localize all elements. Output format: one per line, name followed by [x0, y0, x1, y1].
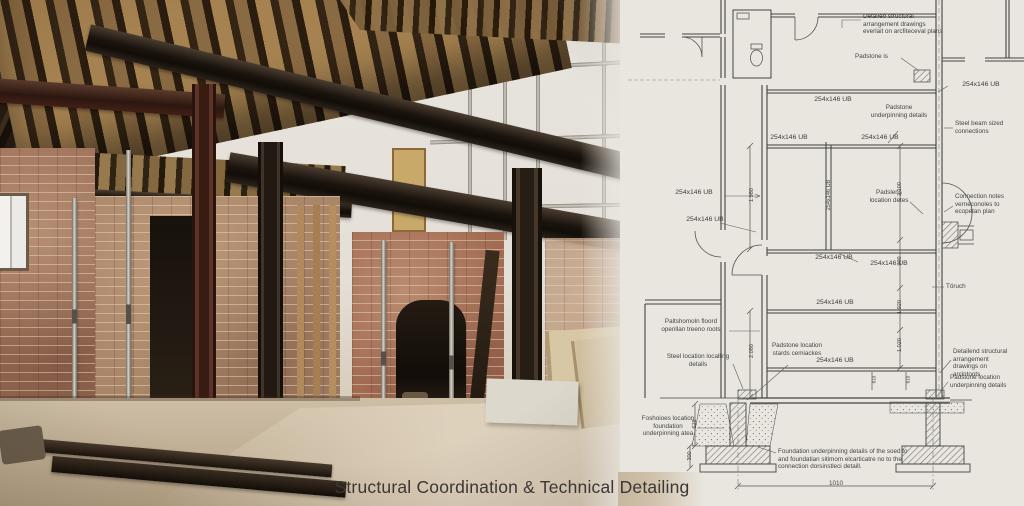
note-detailed-top: Detailed structural arrangement drawings…: [863, 13, 945, 36]
note-steel-beam-sized: Steel beam sized connections: [955, 120, 1017, 135]
beam-size-label: 254x146 UB: [796, 96, 870, 103]
dim-1920: 1.920: [897, 289, 903, 325]
leader-lines: [697, 20, 953, 453]
steel-beam-lines: [767, 87, 936, 371]
white-board: [485, 378, 578, 425]
dim-300: 300: [687, 438, 693, 474]
doorway-opening: [150, 216, 196, 412]
dim-610: 610: [872, 362, 877, 398]
window: [0, 196, 26, 268]
beam-size-label-vertical: 254x146 UB: [826, 165, 832, 225]
dim-2080: 2.080: [749, 333, 755, 369]
beam-size-label: 254x146 UB: [860, 260, 918, 267]
dim-2100: 2.100: [897, 171, 903, 207]
timber-stud: [329, 205, 336, 419]
note-padstone-stards: Padstone location stards cemiackes: [770, 342, 824, 357]
dim-628: 628: [692, 406, 698, 442]
composite-image: 254x146 UB 254x146 UB 254x146 UB 254x146…: [0, 0, 1024, 506]
caption: Structural Coordination & Technical Deta…: [0, 477, 1024, 498]
note-foundation-area: Foshoioes location foundation underpinni…: [638, 415, 698, 438]
dim-610: 610: [906, 362, 911, 398]
note-padstone-is: Padstone is: [855, 53, 901, 61]
beam-size-label: 254x146 UB: [805, 254, 863, 261]
floor-wall-shadow: [0, 396, 360, 401]
beam-size-label: 254x146 UB: [806, 357, 864, 364]
beam-size-label: 254x146 UB: [665, 189, 723, 196]
note-steel-location: Steel location localling details: [664, 353, 732, 368]
note-foundation: Foundation underpinning details of the s…: [778, 448, 908, 471]
dim-1980: 1.980: [749, 177, 755, 213]
debris: [0, 425, 46, 465]
beam-size-label: 254x146 UB: [950, 81, 1012, 88]
beam-size-label: 254x146 UB: [851, 134, 909, 141]
beam-size-label: 254x146 UB: [806, 299, 864, 306]
beam-size-label: 254x146 UB: [760, 134, 818, 141]
note-padstone-loc-underpinning: Padstone location underpinning details: [950, 374, 1012, 389]
note-connection-notes: Connection notes verneconoles to ecopeta…: [955, 193, 1017, 216]
brick-wall-left: [0, 148, 95, 436]
timber-stud: [313, 205, 320, 417]
timber-stud: [297, 205, 304, 415]
beam-size-label: 254x146 UB: [676, 216, 734, 223]
dim-1020: 1.020: [897, 327, 903, 363]
note-toruch: Töruch: [946, 283, 988, 291]
structural-drawing: 254x146 UB 254x146 UB 254x146 UB 254x146…: [620, 0, 1024, 506]
note-padstone-underpinning: Padstone underpinning details: [870, 104, 928, 119]
note-floor: Paltshomoln floord openllan treeno roots: [654, 318, 728, 333]
dim-900: 900: [897, 243, 903, 279]
note-padslens-location: Padslens location detes: [866, 189, 912, 204]
